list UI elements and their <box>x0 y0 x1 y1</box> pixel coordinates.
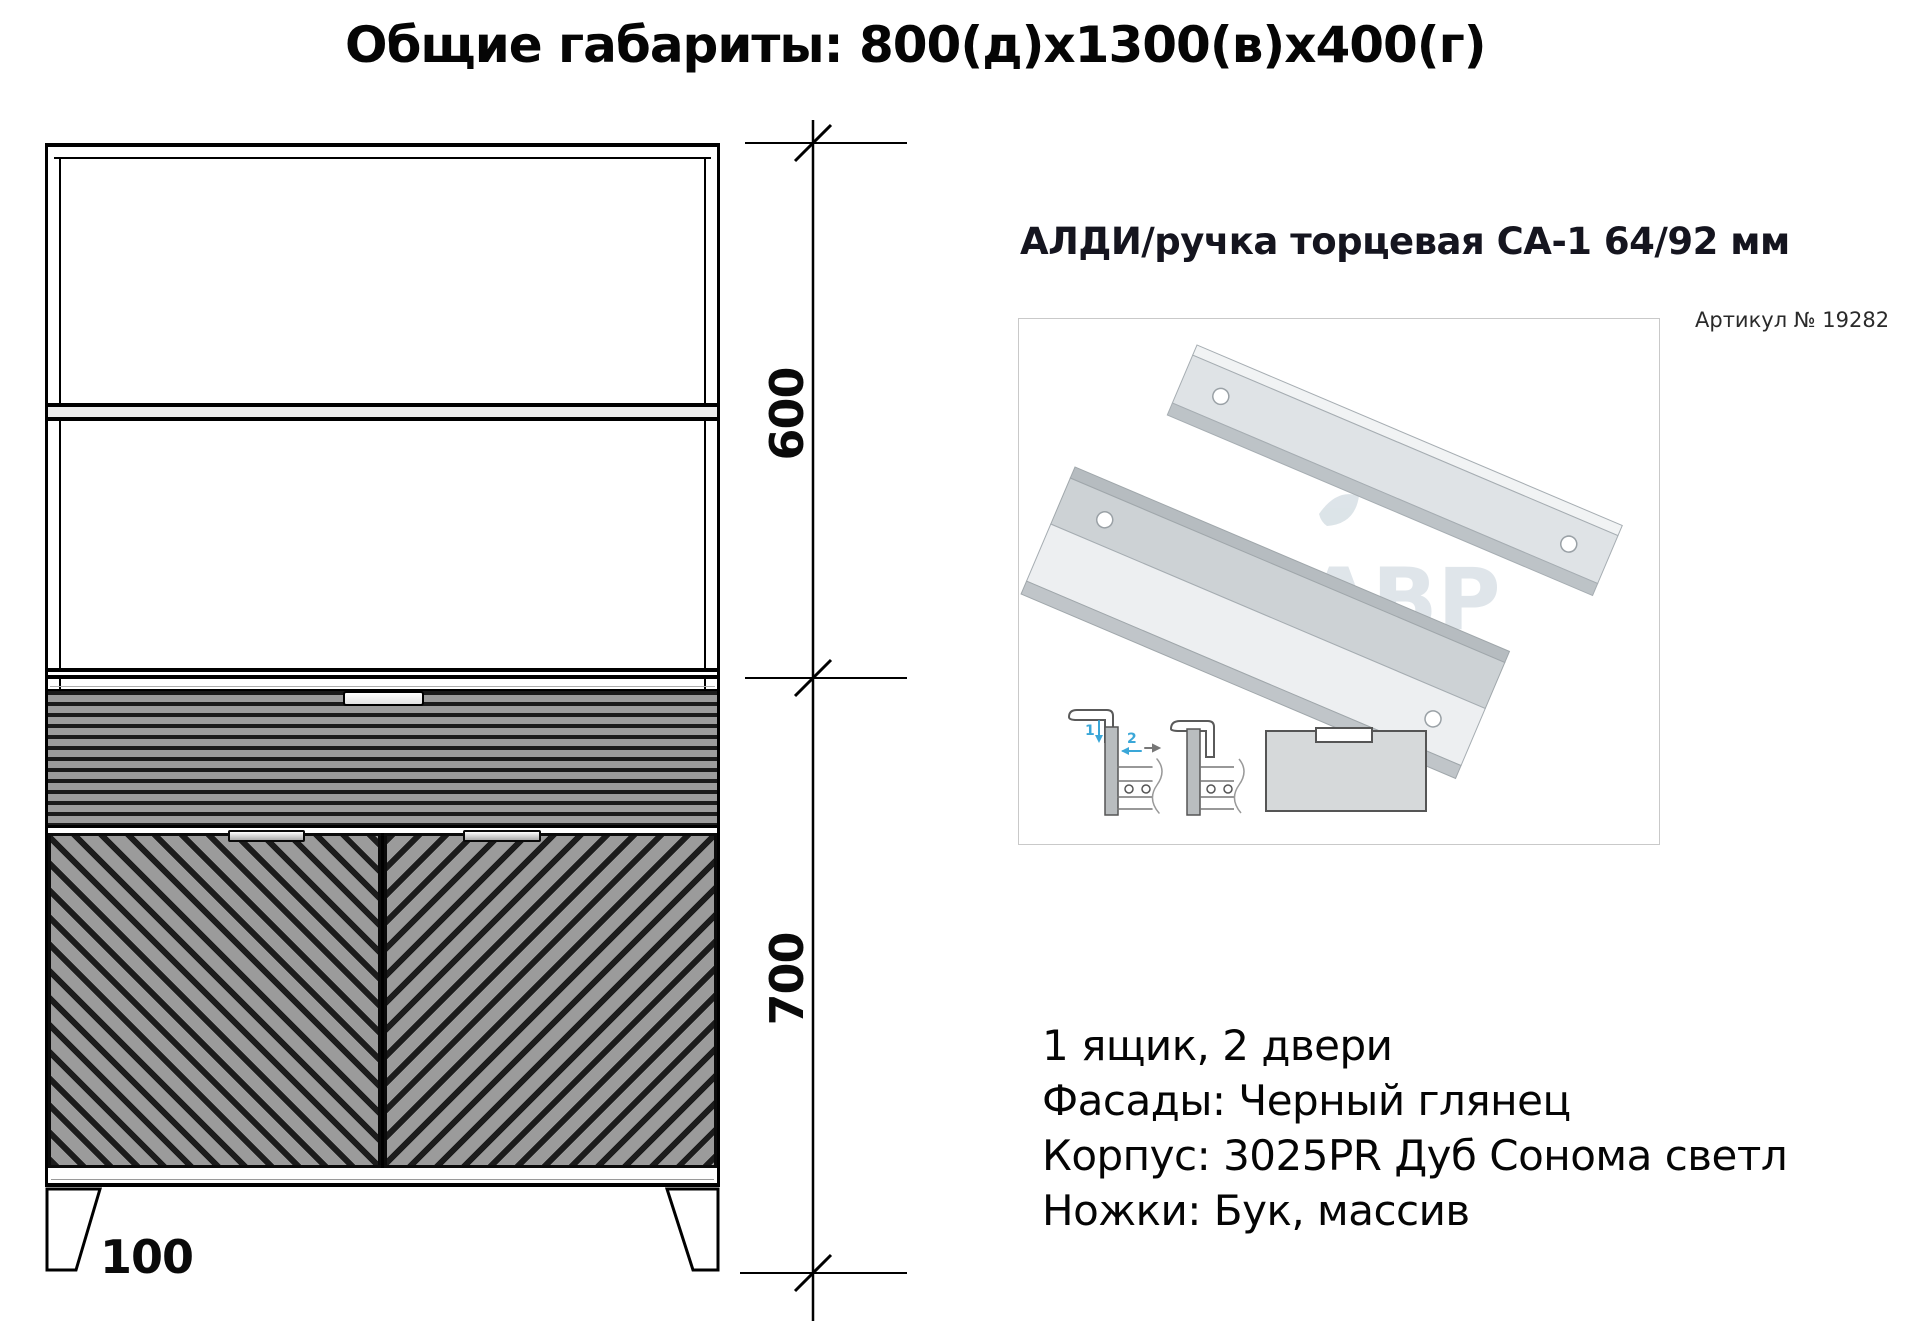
dimension-lines <box>735 110 920 1321</box>
spec-legs: Ножки: Бук, массив <box>1042 1183 1787 1238</box>
door-left <box>48 833 381 1168</box>
spec-body: Корпус: 3025PR Дуб Сонома светл <box>1042 1128 1787 1183</box>
spec-configuration: 1 ящик, 2 двери <box>1042 1018 1787 1073</box>
cabinet-bottom-panel-line <box>51 1179 714 1180</box>
dimension-label-700: 700 <box>760 914 814 1044</box>
cabinet-top-panel <box>45 143 720 147</box>
product-sku: Артикул № 19282 <box>1695 308 1889 332</box>
cabinet-inner-wall-right <box>704 159 706 690</box>
door-right <box>384 833 717 1168</box>
drawer-handle <box>343 691 424 706</box>
doors-section <box>48 833 717 1168</box>
cabinet-bottom-panel <box>48 1168 717 1183</box>
handle-photo: ЛАВР 1 2 <box>1019 319 1659 844</box>
break-line <box>1152 759 1162 813</box>
cabinet-top-panel-underline <box>54 157 711 159</box>
door-handle-left <box>228 830 305 842</box>
panel-bar <box>1105 727 1118 815</box>
screw-icon <box>1145 745 1159 751</box>
page-title: Общие габариты: 800(д)x1300(в)x400(г) <box>345 16 1486 74</box>
step-1-label: 1 <box>1085 723 1095 739</box>
install-diagram-1: 1 2 <box>1069 710 1162 815</box>
cabinet-middle-shelf <box>48 403 717 421</box>
install-diagram-3 <box>1266 728 1426 811</box>
watermark-leaf-icon <box>1319 494 1359 526</box>
step-2-label: 2 <box>1127 731 1137 747</box>
cabinet-drawing <box>45 143 720 1272</box>
panel-bar <box>1187 729 1200 815</box>
drawer-front <box>48 689 717 828</box>
mounted-handle <box>1316 728 1372 742</box>
drawer-gap-line <box>50 686 715 687</box>
specs-block: 1 ящик, 2 двери Фасады: Черный глянец Ко… <box>1042 1018 1787 1238</box>
foot-left <box>47 1189 100 1270</box>
dimension-label-600: 600 <box>760 349 814 479</box>
break-line <box>1234 759 1244 813</box>
door-handle-right <box>463 830 541 842</box>
arrow-left-icon <box>1121 747 1129 755</box>
product-title: АЛДИ/ручка торцевая СА-1 64/92 мм <box>1020 220 1790 263</box>
arrow-down-icon <box>1095 735 1103 743</box>
cabinet-inner-wall-left <box>59 159 61 690</box>
install-diagram-2 <box>1171 721 1244 815</box>
product-card: ЛАВР 1 2 <box>1018 318 1660 845</box>
dimension-label-100: 100 <box>100 1230 260 1284</box>
cabinet-open-section-bottom <box>48 668 717 679</box>
cabinet-right-wall <box>717 143 720 1187</box>
spec-facades: Фасады: Черный глянец <box>1042 1073 1787 1128</box>
foot-right <box>667 1189 718 1270</box>
